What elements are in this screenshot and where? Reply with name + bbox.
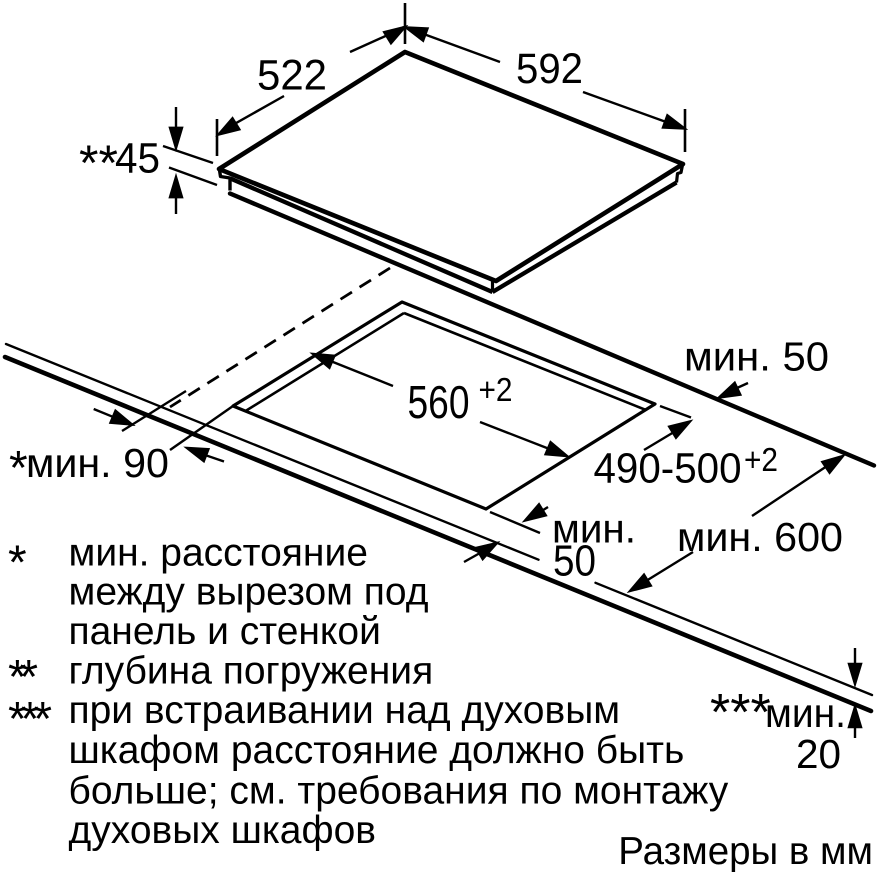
- svg-text:+2: +2: [479, 371, 513, 408]
- svg-text:мин. 50: мин. 50: [684, 334, 829, 380]
- svg-text:глубина погружения: глубина погружения: [69, 650, 434, 693]
- svg-text:*: *: [9, 442, 28, 495]
- svg-text:20: 20: [796, 731, 841, 777]
- svg-text:522: 522: [257, 52, 327, 100]
- svg-text:мин. 600: мин. 600: [677, 514, 843, 560]
- svg-text:мин. расстояние: мин. расстояние: [69, 532, 368, 575]
- svg-text:мин. 90: мин. 90: [26, 440, 169, 486]
- svg-text:духовых шкафов: духовых шкафов: [69, 809, 377, 852]
- svg-text:больше; см. требования по монт: больше; см. требования по монтажу: [69, 770, 729, 813]
- svg-text:мин.: мин.: [765, 690, 846, 736]
- svg-text:50: 50: [553, 538, 596, 586]
- svg-text:490-500: 490-500: [594, 445, 742, 493]
- svg-text:592: 592: [516, 45, 583, 93]
- svg-text:между вырезом под: между вырезом под: [69, 571, 429, 614]
- svg-text:при встраивании над духовым: при встраивании над духовым: [69, 689, 621, 732]
- svg-text:панель и стенкой: панель и стенкой: [69, 610, 381, 653]
- svg-text:***: ***: [8, 693, 52, 746]
- svg-text:*: *: [8, 537, 27, 590]
- svg-text:560: 560: [408, 376, 470, 428]
- svg-text:45: 45: [115, 135, 160, 183]
- svg-text:**: **: [79, 135, 118, 191]
- svg-text:Размеры в мм: Размеры в мм: [618, 830, 873, 873]
- svg-text:***: ***: [710, 684, 771, 742]
- svg-text:+2: +2: [744, 441, 778, 478]
- svg-text:шкафом расстояние должно быть: шкафом расстояние должно быть: [69, 729, 685, 772]
